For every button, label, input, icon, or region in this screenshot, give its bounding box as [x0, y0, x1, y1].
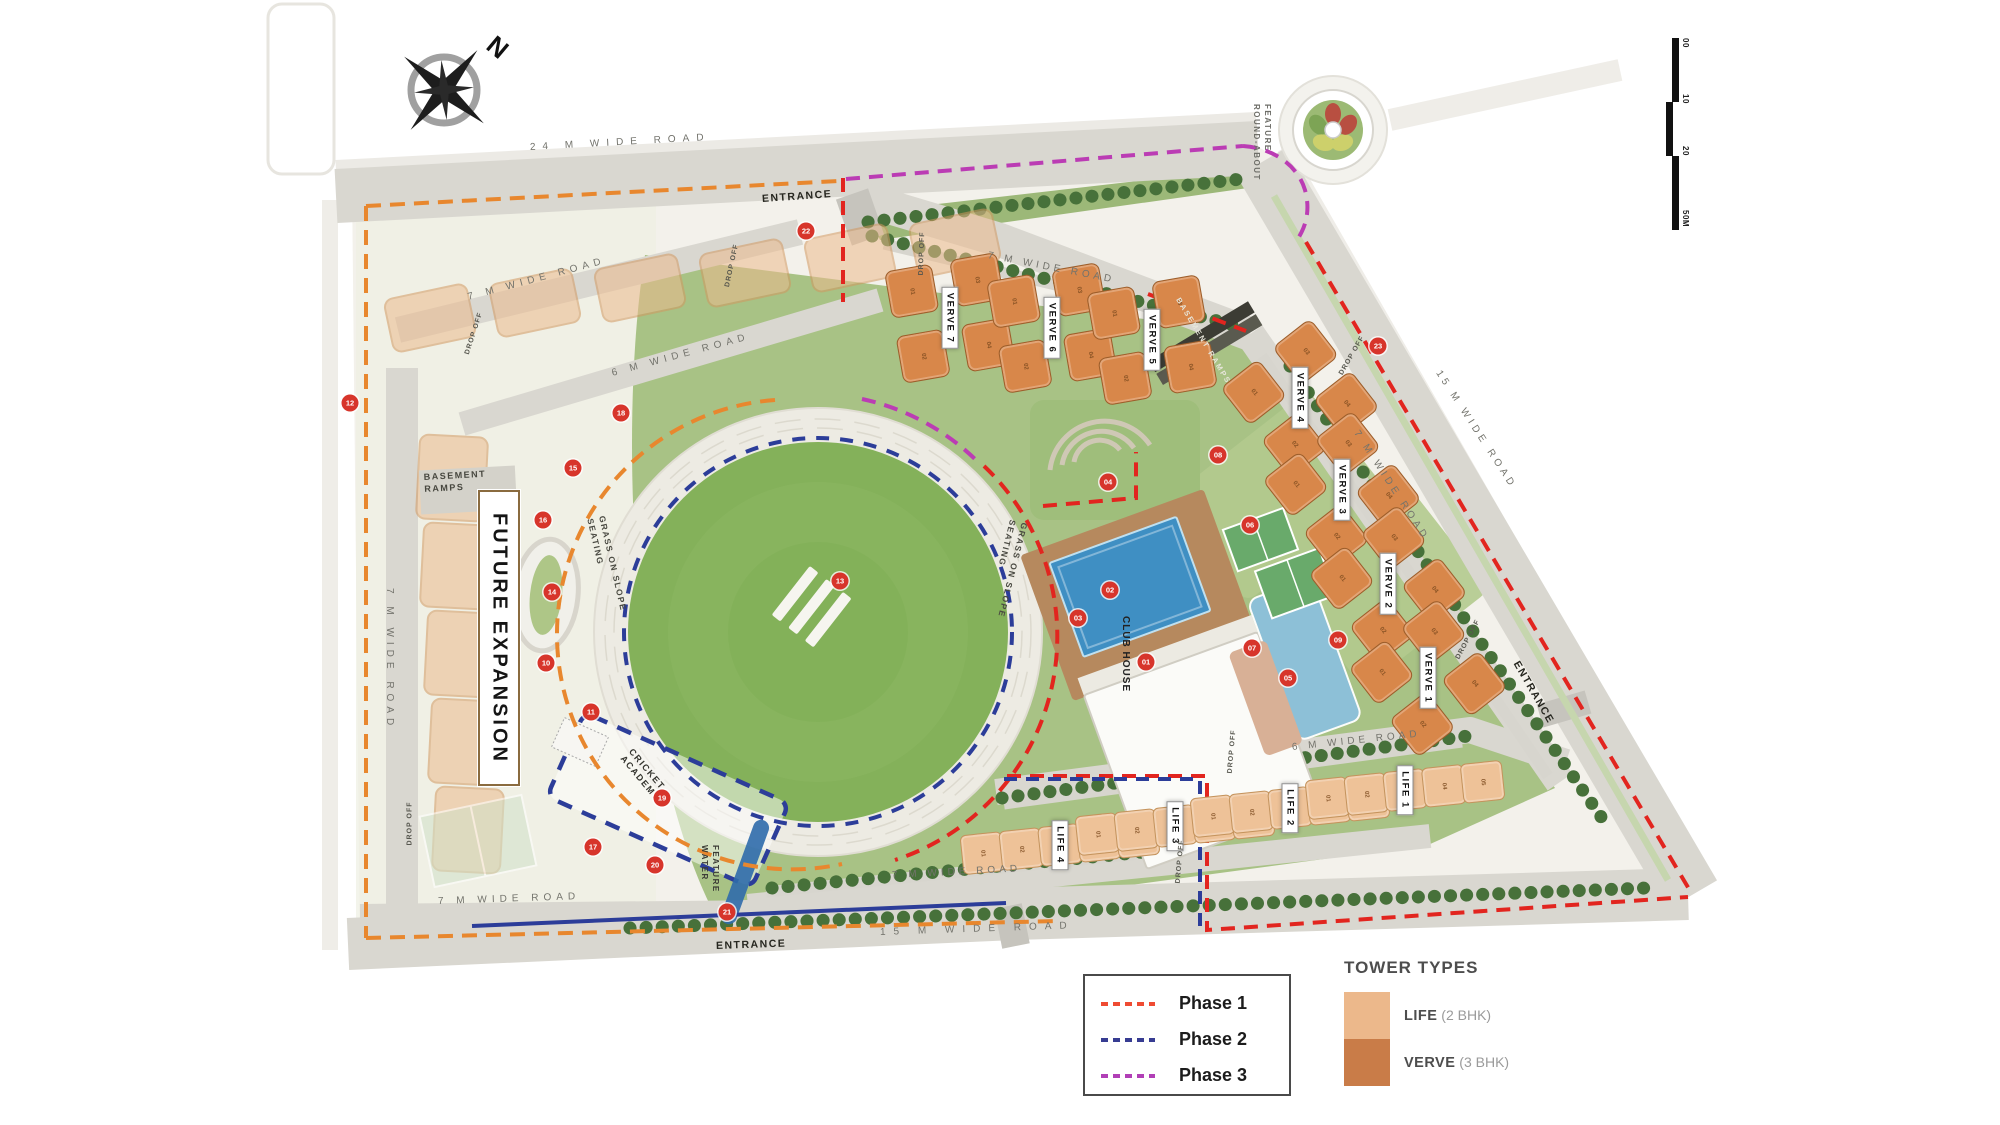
tower-unit: 01 [1086, 285, 1142, 341]
scale-tick: 50M [1681, 210, 1690, 227]
amenity-marker-13: 13 [832, 573, 849, 590]
scale-tick: 00 [1681, 38, 1690, 48]
unit-number: 01 [1209, 813, 1216, 820]
amenity-marker-10: 10 [538, 655, 555, 672]
club-house-label: CLUB HOUSE [1120, 616, 1131, 692]
unit-number: 03 [1075, 286, 1082, 294]
tower-name-banner: VERVE 7 [942, 287, 959, 349]
unit-number: 02 [1378, 626, 1387, 635]
amenity-marker-05: 05 [1280, 670, 1297, 687]
tower-unit: 01 [884, 263, 940, 319]
north-label: N [481, 30, 512, 65]
unit-number: 03 [1301, 347, 1310, 356]
unit-number: 01 [1291, 480, 1300, 489]
unit-number: 01 [1094, 831, 1101, 838]
unit-number: 02 [1290, 440, 1299, 449]
unit-number: 05 [1479, 778, 1486, 785]
amenity-marker-14: 14 [544, 584, 561, 601]
unit-number: 03 [1389, 533, 1398, 542]
amenity-marker-21: 21 [719, 904, 736, 921]
amenity-marker-17: 17 [585, 839, 602, 856]
roundabout-feature-label: ROUND-ABOUTFEATURE [1252, 104, 1272, 181]
unit-number: 02 [1363, 790, 1370, 797]
scale-tick: 10 [1681, 94, 1690, 104]
unit-number: 01 [1377, 668, 1386, 677]
tower-types-title: TOWER TYPES [1344, 958, 1509, 978]
legend-row-phase-2: Phase 2 [1101, 1029, 1289, 1050]
amenity-marker-11: 11 [583, 704, 600, 721]
amenity-marker-12: 12 [342, 395, 359, 412]
unit-number: 03 [973, 276, 980, 284]
amenity-marker-20: 20 [647, 857, 664, 874]
scale-segment [1672, 38, 1679, 102]
tower-name-banner: VERVE 2 [1380, 553, 1397, 615]
amenity-marker-02: 02 [1102, 582, 1119, 599]
tower-type-verve-row: VERVE (3 BHK) [1344, 1039, 1509, 1086]
scale-tick: 20 [1681, 146, 1690, 156]
unit-number: 02 [1122, 374, 1129, 382]
tower-name-banner: LIFE 1 [1397, 765, 1414, 815]
amenity-marker-22: 22 [798, 223, 815, 240]
water-feature-label: WATERFEATURE [700, 845, 720, 893]
scale-segment [1666, 102, 1673, 156]
amenity-marker-01: 01 [1138, 654, 1155, 671]
life-color-swatch [1344, 992, 1390, 1039]
unit-number: 04 [1087, 351, 1094, 359]
legend-row-phase-3: Phase 3 [1101, 1065, 1289, 1086]
amenity-marker-16: 16 [535, 512, 552, 529]
unit-number: 02 [1248, 808, 1255, 815]
amenity-marker-19: 19 [654, 790, 671, 807]
unit-number: 02 [1018, 845, 1025, 852]
amenity-marker-09: 09 [1330, 632, 1347, 649]
phase-1-dash-swatch [1101, 1002, 1155, 1006]
tower-name-banner: VERVE 1 [1420, 647, 1437, 709]
verve-type-label: VERVE (3 BHK) [1404, 1054, 1509, 1071]
unit-number: 02 [1418, 720, 1427, 729]
scale-segment [1672, 156, 1679, 230]
tower-name-banner: VERVE 3 [1334, 459, 1351, 521]
phase-2-label: Phase 2 [1179, 1029, 1247, 1050]
life-type-label: LIFE (2 BHK) [1404, 1007, 1491, 1024]
amenity-marker-04: 04 [1100, 474, 1117, 491]
phase-1-label: Phase 1 [1179, 993, 1247, 1014]
phase-legend: Phase 1 Phase 2 Phase 3 [1083, 974, 1291, 1096]
unit-number: 04 [985, 341, 992, 349]
tower-name-banner: LIFE 4 [1052, 820, 1069, 870]
unit-number: 01 [979, 850, 986, 857]
amenity-marker-03: 03 [1070, 610, 1087, 627]
drop-off-label: DROP OFF [407, 801, 414, 845]
tower-name-banner: VERVE 4 [1292, 367, 1309, 429]
tower-types-legend: TOWER TYPES LIFE (2 BHK) VERVE (3 BHK) [1344, 958, 1509, 1086]
legend-row-phase-1: Phase 1 [1101, 993, 1289, 1014]
amenity-marker-07: 07 [1244, 640, 1261, 657]
unit-number: 01 [1337, 574, 1346, 583]
tower-name-banner: VERVE 6 [1044, 297, 1061, 359]
unit-number: 04 [1342, 399, 1351, 408]
tower-unit: 05 [1460, 760, 1506, 804]
amenity-marker-23: 23 [1370, 338, 1387, 355]
site-master-plan: N 00 10 20 50M 24 M WIDE ROAD 7 M WIDE R… [0, 0, 2000, 1125]
phase-2-dash-swatch [1101, 1038, 1155, 1042]
tower-name-banner: LIFE 2 [1282, 783, 1299, 833]
verve-color-swatch [1344, 1039, 1390, 1086]
scale-bar: 00 10 20 50M [1666, 38, 1700, 238]
compass-rose: N [382, 24, 512, 154]
unit-number: 04 [1187, 363, 1194, 371]
unit-number: 04 [1430, 585, 1439, 594]
amenity-marker-18: 18 [613, 405, 630, 422]
amenity-marker-15: 15 [565, 460, 582, 477]
unit-number: 03 [1429, 627, 1438, 636]
unit-number: 01 [1324, 795, 1331, 802]
unit-number: 02 [1022, 362, 1029, 370]
amenity-marker-06: 06 [1242, 517, 1259, 534]
unit-number: 02 [920, 352, 927, 360]
entrance-label-bottom: ENTRANCE [716, 938, 787, 952]
unit-number: 01 [908, 287, 915, 295]
tower-name-banner: VERVE 5 [1144, 309, 1161, 371]
unit-number: 01 [1010, 297, 1017, 305]
phase-3-dash-swatch [1101, 1074, 1155, 1078]
future-expansion-label: FUTURE EXPANSION [478, 490, 520, 786]
unit-number: 02 [1332, 532, 1341, 541]
unit-number: 04 [1470, 679, 1479, 688]
unit-number: 02 [1133, 826, 1140, 833]
unit-number: 01 [1110, 309, 1117, 317]
unit-number: 04 [1440, 782, 1447, 789]
unit-number: 03 [1343, 439, 1352, 448]
phase-3-label: Phase 3 [1179, 1065, 1247, 1086]
tower-unit: 01 [986, 273, 1042, 329]
tower-type-life-row: LIFE (2 BHK) [1344, 992, 1509, 1039]
amenity-marker-08: 08 [1210, 447, 1227, 464]
road-label-7m-future-left: 7 M WIDE ROAD [384, 588, 395, 730]
unit-number: 01 [1249, 388, 1258, 397]
